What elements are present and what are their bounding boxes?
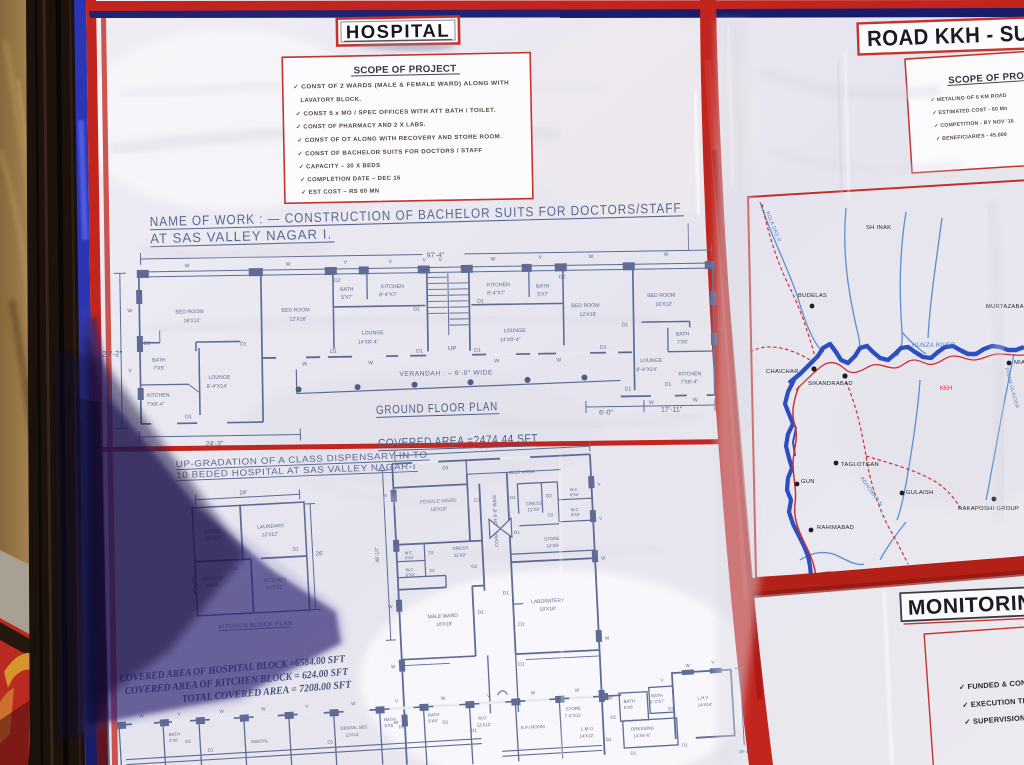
svg-text:LOUNGE: LOUNGE	[504, 328, 527, 334]
svg-text:W: W	[693, 397, 698, 403]
svg-text:BATH: BATH	[428, 712, 440, 718]
svg-text:D1: D1	[185, 414, 192, 420]
svg-text:BATH: BATH	[384, 717, 396, 723]
svg-text:BATH: BATH	[152, 358, 166, 364]
svg-text:12'X16': 12'X16'	[579, 312, 596, 318]
svg-text:D1: D1	[518, 622, 525, 628]
svg-text:D2: D2	[546, 493, 553, 498]
svg-text:BATH: BATH	[536, 284, 550, 290]
svg-text:11'X9': 11'X9'	[454, 552, 466, 558]
svg-text:KITCHEN: KITCHEN	[487, 282, 510, 288]
svg-text:97'-4": 97'-4"	[427, 252, 445, 259]
svg-text:BATH: BATH	[623, 698, 635, 704]
svg-text:BED ROOM: BED ROOM	[175, 309, 203, 315]
svg-text:DENTAL: DENTAL	[251, 738, 269, 744]
svg-text:BATH: BATH	[676, 331, 690, 337]
svg-text:D1: D1	[208, 747, 215, 752]
svg-text:4'X6': 4'X6'	[169, 737, 179, 743]
svg-text:48'-10": 48'-10"	[374, 547, 381, 563]
svg-text:KITCHEN: KITCHEN	[147, 393, 170, 399]
svg-text:W: W	[286, 262, 291, 268]
svg-text:7'X5': 7'X5'	[677, 339, 688, 345]
svg-text:TAGLOTGAN: TAGLOTGAN	[841, 462, 879, 468]
svg-text:BED ROOM: BED ROOM	[281, 307, 309, 313]
svg-text:5'X7': 5'X7'	[537, 292, 548, 298]
svg-text:D2: D2	[144, 341, 151, 347]
svg-text:12'X12': 12'X12'	[261, 531, 278, 538]
svg-text:BATH: BATH	[340, 287, 354, 293]
svg-text:GUN: GUN	[801, 479, 815, 485]
svg-text:14'X12': 14'X12'	[579, 733, 594, 739]
svg-text:6'X4': 6'X4'	[570, 492, 579, 497]
svg-text:12'X12': 12'X12'	[476, 722, 491, 728]
svg-text:11'X9': 11'X9'	[527, 507, 539, 513]
svg-text:DRESS: DRESS	[526, 501, 542, 507]
svg-text:L.M.O: L.M.O	[581, 726, 594, 732]
svg-text:D1: D1	[622, 322, 629, 328]
svg-text:RAHIMABAD: RAHIMABAD	[817, 525, 854, 531]
svg-text:18'X18': 18'X18'	[430, 506, 447, 513]
svg-text:14'X14': 14'X14'	[698, 702, 713, 708]
svg-text:D1: D1	[416, 349, 423, 355]
svg-text:W: W	[185, 263, 190, 269]
svg-text:W: W	[589, 254, 594, 260]
svg-text:DRESS: DRESS	[452, 545, 468, 551]
svg-text:W: W	[664, 252, 669, 258]
svg-text:KITCHEN: KITCHEN	[678, 371, 701, 377]
svg-text:KITCHEN: KITCHEN	[381, 284, 404, 290]
svg-text:W: W	[491, 256, 496, 262]
svg-text:STORE: STORE	[544, 536, 560, 542]
svg-text:8'-4"X14': 8'-4"X14'	[636, 367, 657, 373]
svg-text:D1: D1	[630, 750, 636, 755]
svg-text:D1: D1	[292, 546, 299, 552]
svg-text:D1: D1	[665, 382, 672, 388]
svg-text:26': 26'	[316, 551, 324, 557]
svg-text:D2: D2	[429, 568, 435, 573]
svg-text:14'X8'-4": 14'X8'-4"	[500, 337, 521, 343]
svg-text:D1: D1	[330, 349, 337, 355]
svg-text:14'X8'-4": 14'X8'-4"	[358, 339, 379, 345]
svg-text:D2: D2	[398, 724, 404, 729]
svg-text:LOUNGE: LOUNGE	[640, 358, 663, 364]
svg-text:RAKAPOSHI GROUP: RAKAPOSHI GROUP	[958, 506, 1019, 512]
svg-text:29'-2": 29'-2"	[102, 349, 123, 358]
svg-text:D1: D1	[682, 742, 688, 747]
svg-text:CHAICHAR: CHAICHAR	[766, 369, 799, 375]
svg-text:18'X18': 18'X18'	[539, 606, 556, 613]
svg-text:12'X12': 12'X12'	[345, 732, 360, 738]
svg-text:D2: D2	[442, 719, 448, 724]
svg-text:24': 24'	[239, 490, 247, 496]
svg-text:D3: D3	[442, 465, 449, 470]
svg-text:16'X12': 16'X12'	[184, 318, 201, 324]
svg-text:D1: D1	[503, 590, 510, 596]
svg-text:D3: D3	[185, 739, 191, 744]
svg-text:D2: D2	[548, 512, 554, 517]
svg-text:BED ROOM: BED ROOM	[647, 293, 675, 299]
svg-text:D1: D1	[240, 341, 247, 347]
svg-text:HOSPITAL: HOSPITAL	[346, 20, 451, 43]
svg-text:7'X8'-4": 7'X8'-4"	[681, 379, 699, 385]
svg-text:L.H.V: L.H.V	[697, 695, 708, 701]
svg-text:VERANDAH : – 6'-0" WIDE: VERANDAH : – 6'-0" WIDE	[399, 369, 493, 377]
svg-text:7'-5"X12: 7'-5"X12	[564, 713, 581, 719]
svg-text:D1: D1	[514, 530, 521, 535]
svg-text:8'-4"X14': 8'-4"X14'	[207, 384, 228, 390]
svg-text:D1: D1	[413, 307, 420, 313]
svg-text:W: W	[494, 358, 499, 364]
svg-text:LAVATORY BLOCK.: LAVATORY BLOCK.	[300, 97, 361, 104]
svg-text:W: W	[302, 361, 307, 367]
svg-text:W: W	[649, 400, 654, 406]
svg-text:MIA: MIA	[1014, 360, 1024, 366]
svg-text:17'-11": 17'-11"	[661, 406, 683, 413]
svg-text:D2: D2	[610, 714, 616, 719]
svg-text:D1: D1	[477, 610, 484, 616]
svg-text:D2: D2	[471, 564, 478, 569]
svg-text:6'X4': 6'X4'	[571, 512, 580, 517]
svg-text:D1: D1	[477, 299, 484, 305]
svg-text:D2: D2	[559, 274, 566, 280]
svg-text:D1: D1	[471, 728, 478, 733]
svg-text:UP: UP	[448, 346, 456, 352]
svg-text:SH INAK: SH INAK	[866, 225, 891, 231]
svg-text:45'-10": 45'-10"	[477, 444, 493, 451]
svg-text:4'X4': 4'X4'	[405, 555, 414, 560]
svg-text:6'-0": 6'-0"	[599, 410, 614, 417]
svg-text:5'X7': 5'X7'	[341, 295, 352, 301]
svg-text:8'-4"X7': 8'-4"X7'	[487, 290, 505, 296]
svg-text:7'X5': 7'X5'	[153, 366, 164, 372]
svg-text:M.O: M.O	[478, 715, 487, 721]
svg-text:D2: D2	[428, 550, 434, 555]
svg-text:5'X5': 5'X5'	[384, 723, 394, 729]
svg-text:D1: D1	[625, 386, 632, 392]
svg-text:HUNZA RIVER: HUNZA RIVER	[912, 343, 956, 349]
svg-text:12'X16': 12'X16'	[289, 316, 306, 322]
svg-text:16'X12': 16'X12'	[655, 302, 672, 308]
svg-text:24'-3": 24'-3"	[205, 441, 223, 448]
svg-text:18'X18': 18'X18'	[436, 621, 453, 628]
svg-text:W: W	[127, 308, 132, 314]
svg-text:BUDELAS: BUDELAS	[798, 293, 827, 299]
svg-text:6'X4': 6'X4'	[406, 572, 415, 577]
svg-text:14'X8': 14'X8'	[546, 543, 559, 549]
svg-text:14'X6'-6": 14'X6'-6"	[633, 732, 651, 738]
svg-text:D1: D1	[327, 739, 334, 744]
svg-text:LOUNGE: LOUNGE	[362, 330, 385, 336]
svg-text:6'X5': 6'X5'	[624, 704, 634, 710]
svg-text:D1: D1	[600, 345, 607, 351]
svg-text:GULAISH: GULAISH	[906, 490, 934, 496]
svg-text:D1: D1	[510, 495, 517, 500]
svg-text:8'-4"X7': 8'-4"X7'	[379, 292, 397, 298]
svg-text:D1: D1	[474, 348, 481, 354]
svg-text:7'X8'-4": 7'X8'-4"	[147, 402, 165, 408]
svg-text:STORE: STORE	[566, 706, 581, 712]
svg-text:BATH: BATH	[651, 693, 663, 699]
svg-text:5'-3"X7': 5'-3"X7'	[649, 699, 664, 705]
svg-text:D1: D1	[518, 662, 525, 668]
svg-text:W: W	[556, 357, 561, 363]
svg-text:KKH: KKH	[940, 386, 952, 392]
svg-text:5'X5': 5'X5'	[428, 718, 438, 724]
svg-text:D1: D1	[606, 737, 613, 742]
svg-text:BATH: BATH	[169, 731, 181, 737]
svg-text:39'-11": 39'-11"	[739, 748, 753, 754]
svg-text:LOUNGE: LOUNGE	[208, 375, 231, 381]
svg-text:D2: D2	[334, 278, 341, 284]
svg-text:BED ROOM: BED ROOM	[571, 303, 599, 309]
svg-text:SIKANDRABAD: SIKANDRABAD	[808, 381, 853, 387]
svg-text:W: W	[368, 360, 373, 366]
